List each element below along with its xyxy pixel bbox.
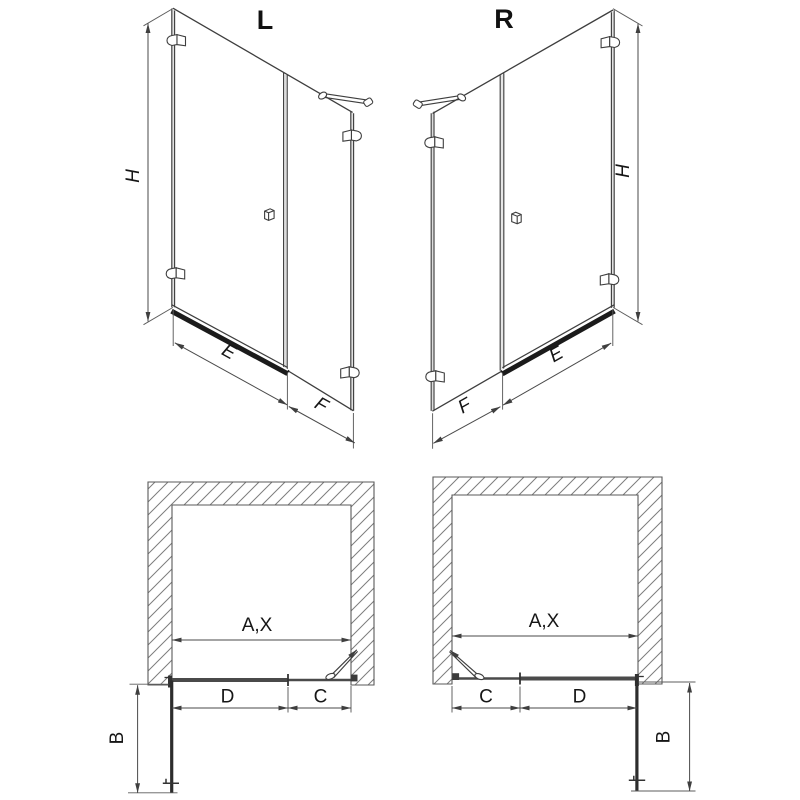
glass-edge-core (433, 12, 613, 411)
dim-label-E: E (546, 342, 568, 367)
wall-bracket-icon (166, 268, 185, 279)
hinge-icon (343, 130, 362, 141)
glass-edge-core (173, 10, 352, 410)
wall-hatch (433, 477, 662, 684)
glass-panels-right (431, 10, 614, 411)
panel-top-and-door-bottom-edge (173, 8, 353, 411)
support-bar (322, 94, 367, 104)
wall-profile (452, 673, 459, 680)
screen-plan-right (449, 650, 645, 791)
hinge-icon (426, 371, 445, 382)
dim-label-D: D (221, 687, 235, 708)
wall-bracket-icon (601, 37, 620, 48)
hinge-icon (425, 137, 444, 148)
technical-drawing: L H E F (0, 0, 800, 800)
plan-view-left: A,X D C B (107, 482, 374, 793)
dim-label-C: C (314, 687, 328, 708)
panel-top-and-door-bottom-edge (432, 10, 613, 411)
dim-label-H: H (613, 164, 634, 178)
wall-bracket-icon (600, 274, 619, 285)
iso-view-left: L H E F (123, 5, 373, 449)
hinge-icon (341, 367, 360, 378)
door-handle-icon (265, 209, 275, 221)
dim-label-F: F (455, 394, 477, 419)
dim-label-B: B (654, 731, 675, 744)
support-bar-wall-flange (363, 97, 374, 107)
glass-panels-left (172, 8, 354, 411)
iso-view-right: R H E F (413, 4, 643, 449)
dim-label-D: D (573, 687, 587, 708)
dimensions-plan-right: C D B (452, 682, 696, 791)
dim-label-C: C (479, 687, 493, 708)
support-bar-wall-flange (413, 99, 424, 109)
dimensions-iso-left: H E F (123, 9, 355, 449)
support-bar-plan (450, 650, 479, 675)
variant-title-left: L (257, 5, 274, 35)
dim-label-H: H (123, 169, 144, 183)
screen-plan-left (163, 650, 358, 793)
wall-bracket-icon (167, 35, 186, 46)
dim-label-B: B (107, 732, 128, 745)
dim-label-F: F (311, 393, 333, 418)
dim-label-E: E (218, 340, 240, 365)
variant-title-right: R (494, 4, 514, 34)
door-handle-icon (512, 212, 522, 224)
support-bar-right (413, 92, 467, 109)
support-bar-left (317, 91, 373, 108)
dim-label-AX: A,X (529, 611, 560, 632)
plan-view-right: A,X C D B (433, 477, 696, 792)
dimensions-plan-left: D C B (107, 684, 351, 793)
wall-profile (351, 675, 358, 682)
dim-label-AX: A,X (242, 615, 273, 636)
wall-hatch (148, 482, 374, 685)
